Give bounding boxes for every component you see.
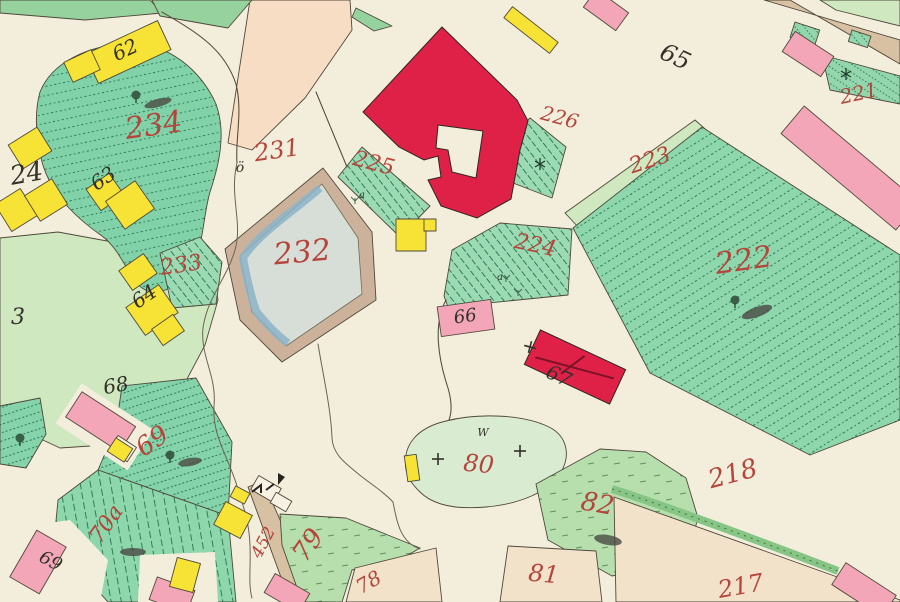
label-66: 66 [452, 305, 478, 329]
map-root: 231 232 233 234 225 226 224 223 222 221 … [0, 0, 900, 602]
label-82: 82 [578, 486, 616, 521]
subparcel-a-225: a [359, 190, 365, 201]
label-81: 81 [527, 559, 560, 590]
label-80: 80 [462, 449, 495, 480]
label-68: 68 [101, 371, 130, 399]
subparcel-a-224: a [497, 272, 503, 283]
w-tree-symbol: W [477, 426, 490, 439]
oe-symbol: ö [236, 160, 244, 176]
label-24: 24 [7, 156, 46, 191]
label-232: 232 [271, 233, 332, 273]
label-3: 3 [11, 305, 25, 330]
cadastral-map-canvas[interactable]: 231 232 233 234 225 226 224 223 222 221 … [0, 0, 900, 602]
